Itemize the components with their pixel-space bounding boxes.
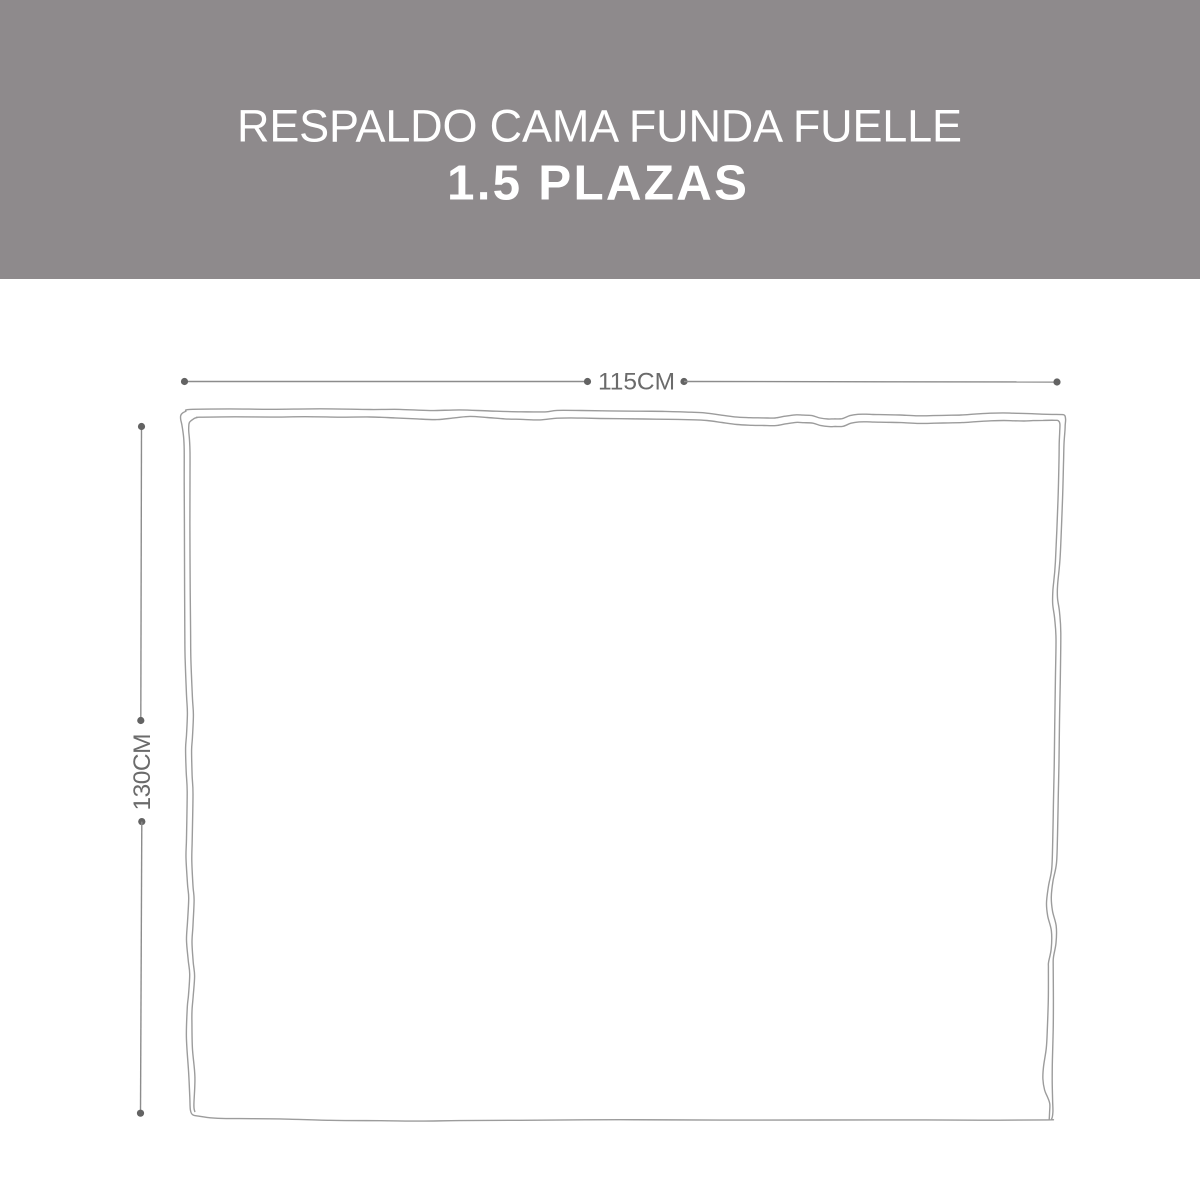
svg-text:RESPALDO CAMA FUNDA FUELLE: RESPALDO CAMA FUNDA FUELLE	[237, 100, 962, 151]
svg-text:115CM: 115CM	[598, 368, 675, 395]
svg-text:1.5 PLAZAS: 1.5 PLAZAS	[447, 156, 747, 211]
svg-text:130CM: 130CM	[129, 734, 156, 811]
